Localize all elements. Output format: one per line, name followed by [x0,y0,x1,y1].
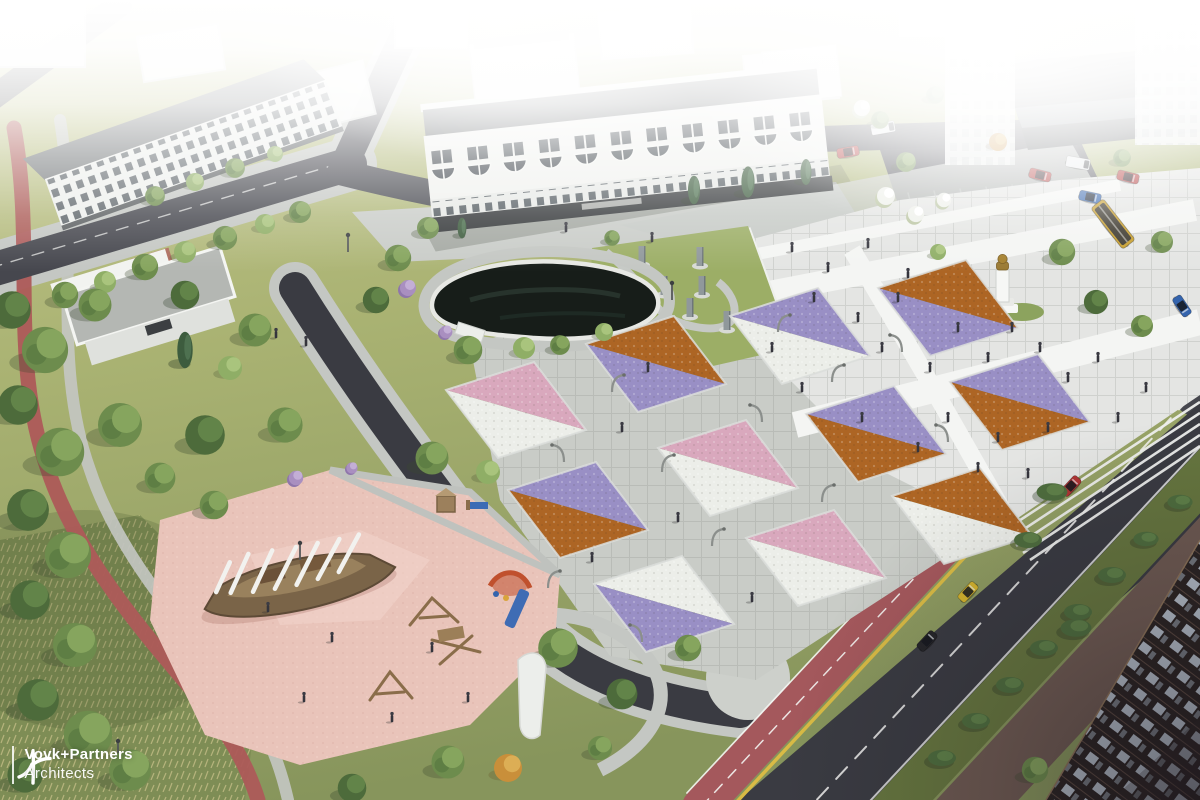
watermark-firm-type: Architects [25,765,133,784]
watermark: Vovk+Partners Architects [12,746,133,784]
tree [0,385,38,425]
bronze-bust [997,254,1009,270]
architectural-render: Vovk+Partners Architects [0,0,1200,800]
render-scene [0,0,1200,800]
